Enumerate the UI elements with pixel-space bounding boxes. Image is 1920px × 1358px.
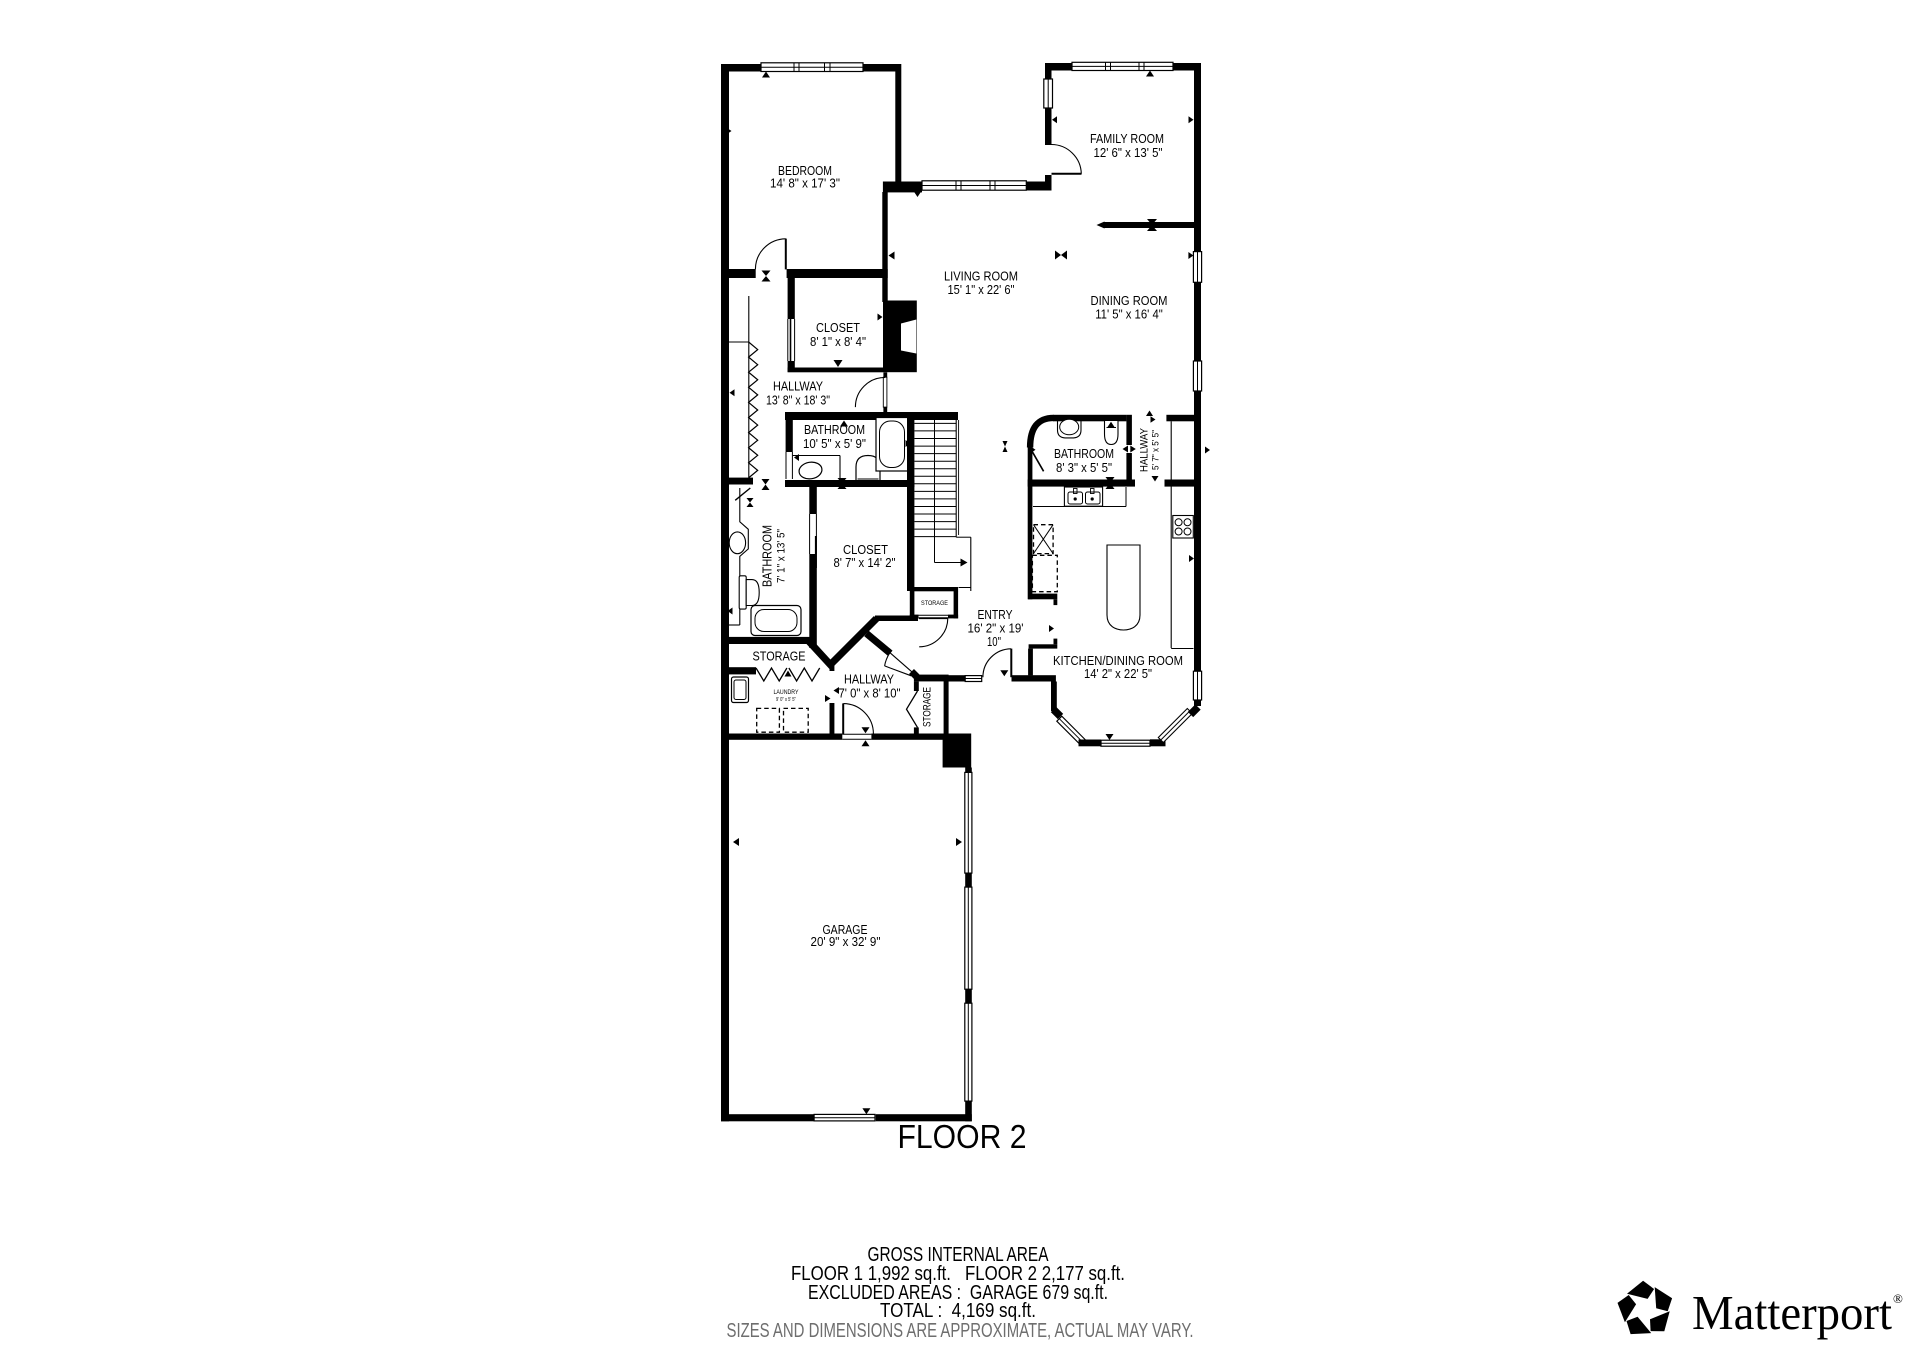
svg-text:LAUNDRY: LAUNDRY bbox=[774, 690, 799, 696]
svg-text:8' 3" x 5' 5": 8' 3" x 5' 5" bbox=[1056, 461, 1112, 475]
svg-text:13' 8" x 18' 3": 13' 8" x 18' 3" bbox=[766, 394, 830, 408]
svg-text:HALLWAY: HALLWAY bbox=[773, 379, 823, 394]
svg-text:CLOSET: CLOSET bbox=[816, 320, 860, 335]
svg-text:9' 0" x 5' 5": 9' 0" x 5' 5" bbox=[776, 697, 796, 703]
svg-text:5' 7" x 5' 5": 5' 7" x 5' 5" bbox=[1151, 430, 1161, 470]
svg-text:STORAGE: STORAGE bbox=[753, 649, 806, 664]
svg-text:8' 7" x 14' 2": 8' 7" x 14' 2" bbox=[834, 556, 896, 570]
svg-text:LIVING ROOM: LIVING ROOM bbox=[944, 269, 1018, 284]
svg-text:14' 2" x 22' 5": 14' 2" x 22' 5" bbox=[1084, 667, 1152, 681]
svg-text:ENTRY: ENTRY bbox=[978, 607, 1013, 622]
svg-text:7' 0" x 8' 10": 7' 0" x 8' 10" bbox=[839, 687, 901, 701]
svg-text:10' 5" x 5' 9": 10' 5" x 5' 9" bbox=[803, 437, 866, 451]
svg-text:BATHROOM: BATHROOM bbox=[804, 422, 865, 437]
svg-text:KITCHEN/DINING ROOM: KITCHEN/DINING ROOM bbox=[1053, 653, 1183, 668]
svg-text:TOTAL : 4,169 sq.ft.: TOTAL : 4,169 sq.ft. bbox=[880, 1299, 1036, 1322]
svg-text:20' 9" x 32' 9": 20' 9" x 32' 9" bbox=[811, 935, 881, 949]
svg-text:11' 5" x 16' 4": 11' 5" x 16' 4" bbox=[1095, 308, 1163, 322]
svg-text:BATHROOM: BATHROOM bbox=[1054, 446, 1114, 461]
svg-text:Matterport: Matterport bbox=[1692, 1285, 1892, 1340]
svg-text:STORAGE: STORAGE bbox=[922, 687, 934, 727]
svg-text:7' 1" x 13' 5": 7' 1" x 13' 5" bbox=[776, 529, 788, 583]
svg-text:10": 10" bbox=[987, 635, 1001, 649]
svg-text:FAMILY ROOM: FAMILY ROOM bbox=[1090, 131, 1164, 146]
svg-text:DINING ROOM: DINING ROOM bbox=[1091, 293, 1168, 308]
svg-text:14' 8" x 17' 3": 14' 8" x 17' 3" bbox=[770, 177, 840, 191]
svg-text:SIZES AND DIMENSIONS ARE APPRO: SIZES AND DIMENSIONS ARE APPROXIMATE, AC… bbox=[727, 1320, 1194, 1342]
svg-text:CLOSET: CLOSET bbox=[843, 542, 888, 557]
svg-text:HALLWAY: HALLWAY bbox=[844, 672, 894, 687]
svg-text:FLOOR 2: FLOOR 2 bbox=[898, 1118, 1027, 1155]
svg-text:HALLWAY: HALLWAY bbox=[1139, 427, 1151, 472]
svg-text:16' 2" x 19': 16' 2" x 19' bbox=[968, 622, 1024, 636]
svg-text:12' 6" x 13' 5": 12' 6" x 13' 5" bbox=[1094, 146, 1163, 160]
svg-text:BATHROOM: BATHROOM bbox=[760, 525, 775, 587]
svg-text:STORAGE: STORAGE bbox=[921, 600, 949, 607]
svg-text:®: ® bbox=[1893, 1291, 1903, 1306]
svg-text:8' 1" x 8' 4": 8' 1" x 8' 4" bbox=[810, 335, 866, 349]
svg-text:15' 1" x 22' 6": 15' 1" x 22' 6" bbox=[948, 283, 1015, 297]
